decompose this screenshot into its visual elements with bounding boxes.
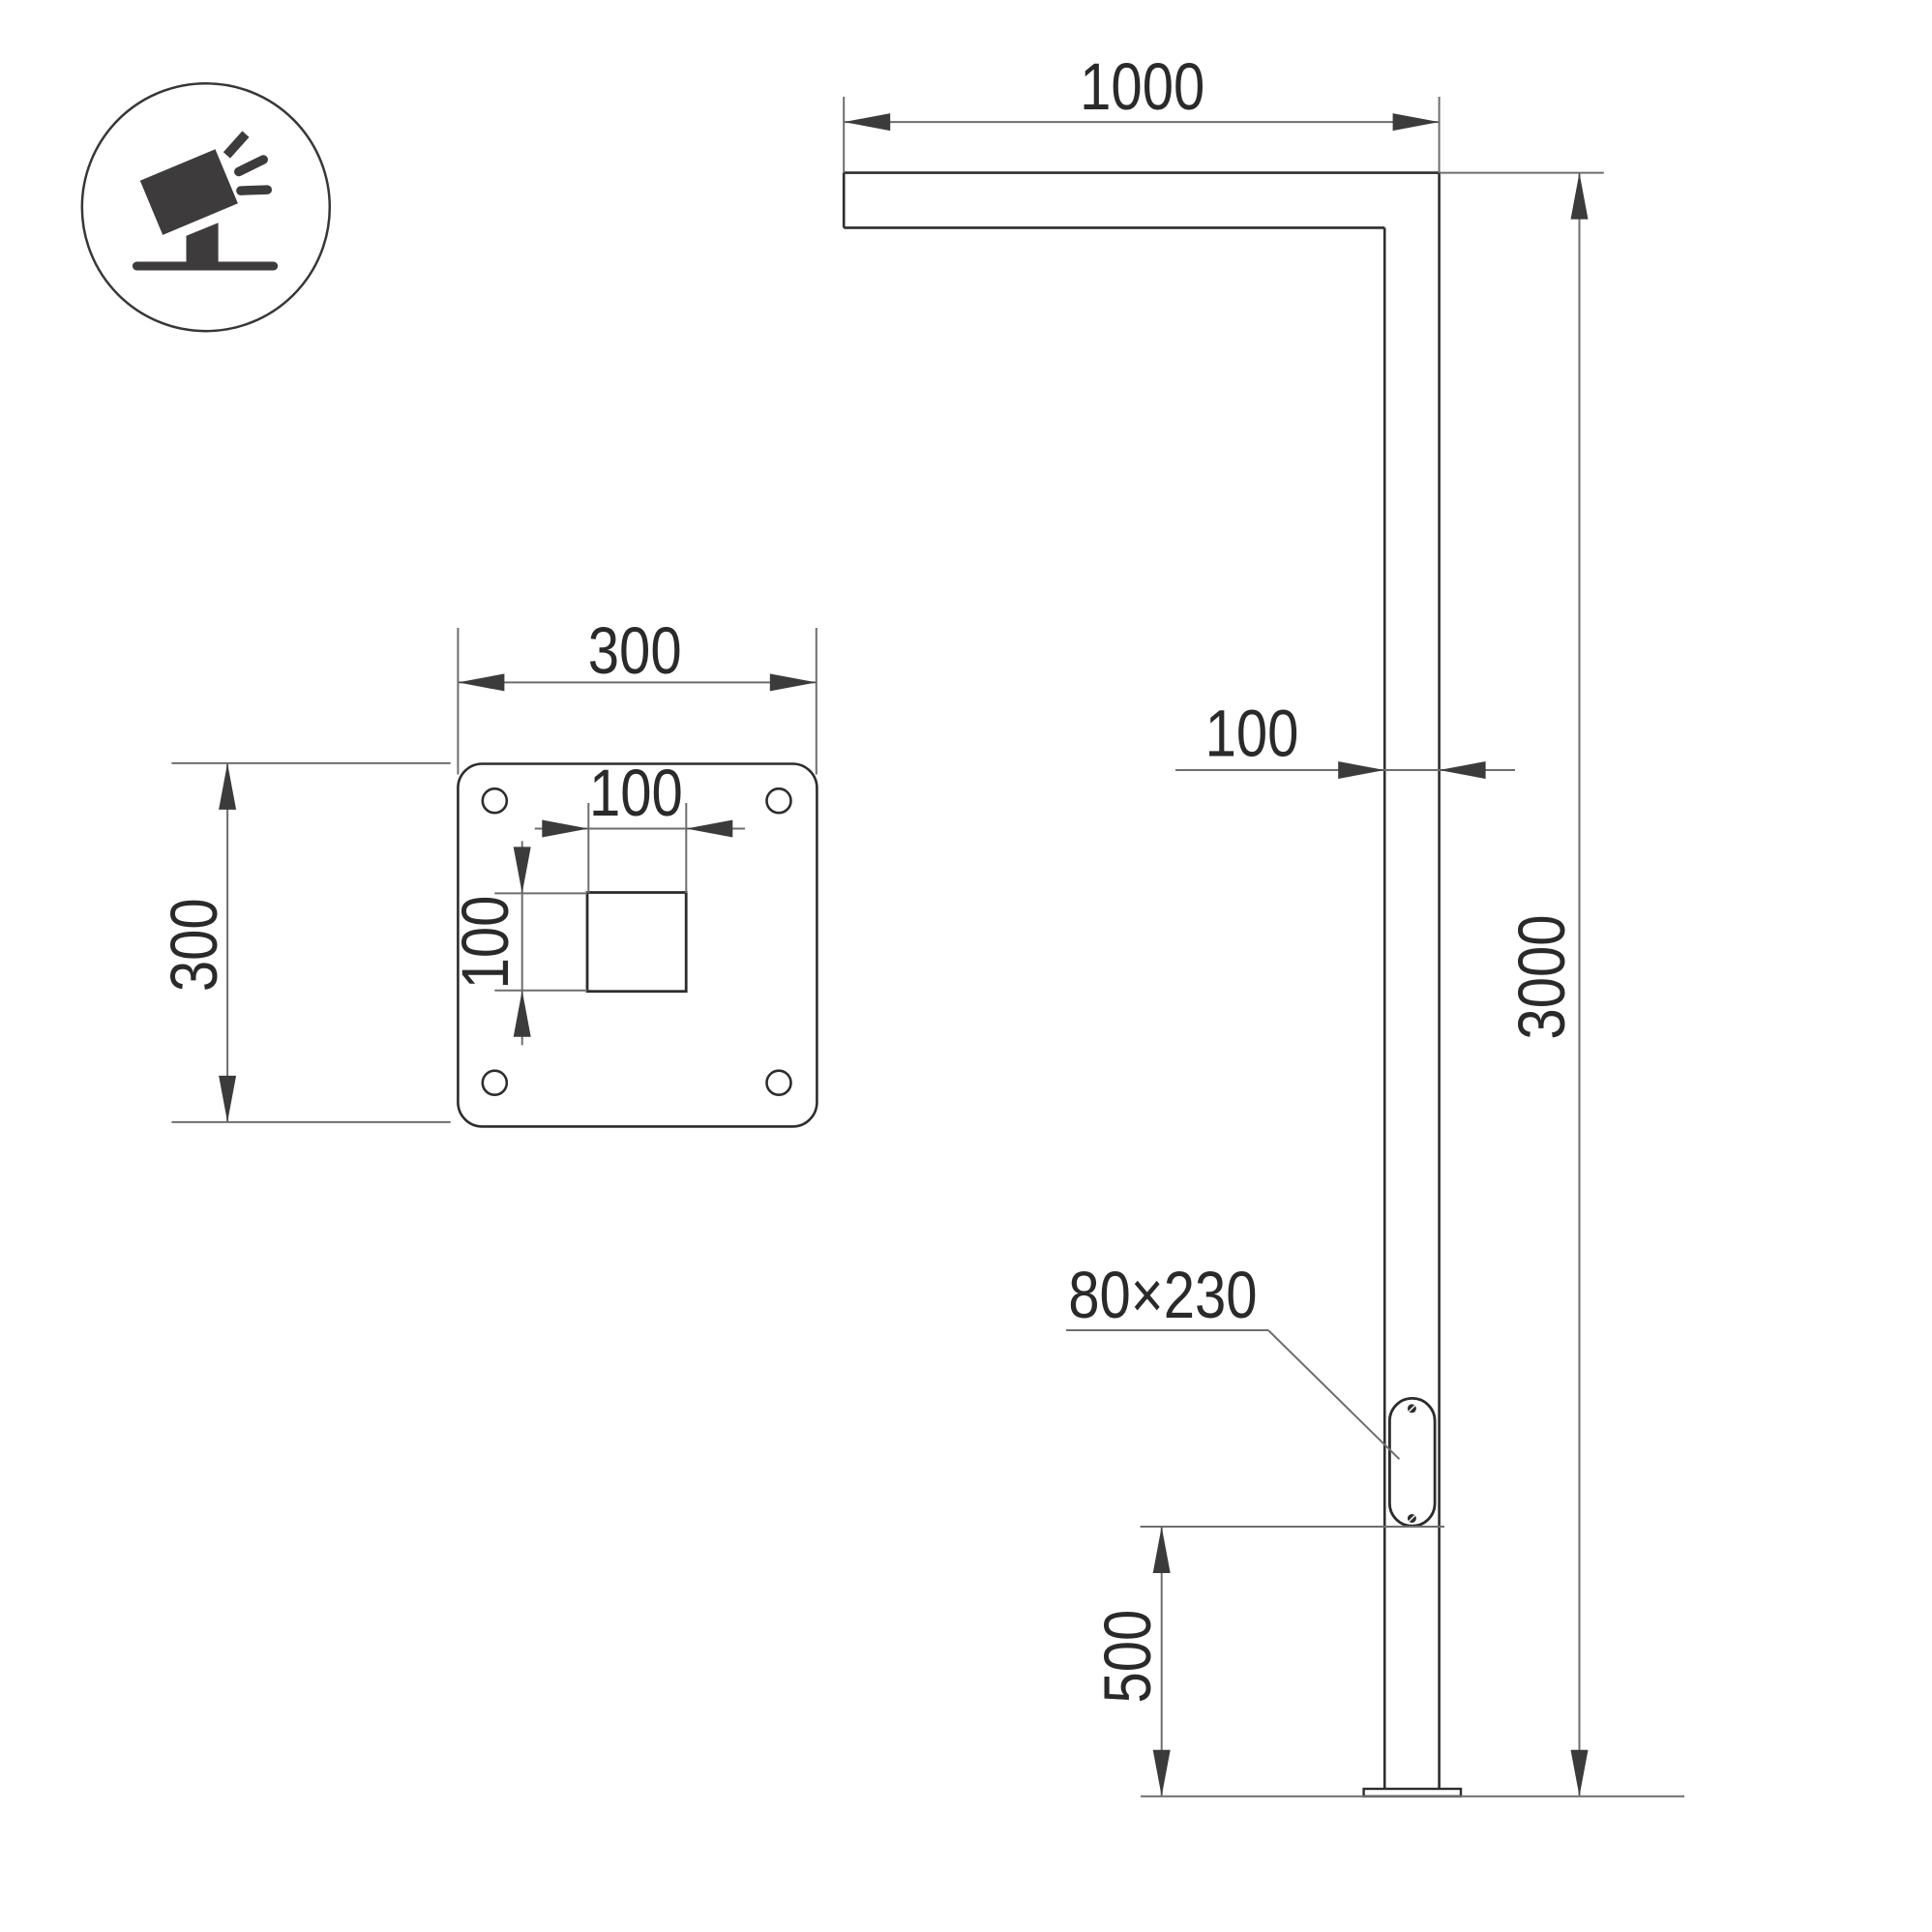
- svg-text:300: 300: [588, 615, 682, 688]
- svg-text:100: 100: [589, 757, 683, 829]
- svg-text:80×230: 80×230: [1068, 1260, 1257, 1332]
- svg-text:500: 500: [1092, 1610, 1165, 1704]
- svg-text:300: 300: [159, 898, 231, 992]
- svg-text:3000: 3000: [1505, 914, 1578, 1039]
- svg-text:100: 100: [449, 896, 521, 990]
- svg-text:100: 100: [1205, 698, 1299, 770]
- svg-text:1000: 1000: [1080, 51, 1204, 124]
